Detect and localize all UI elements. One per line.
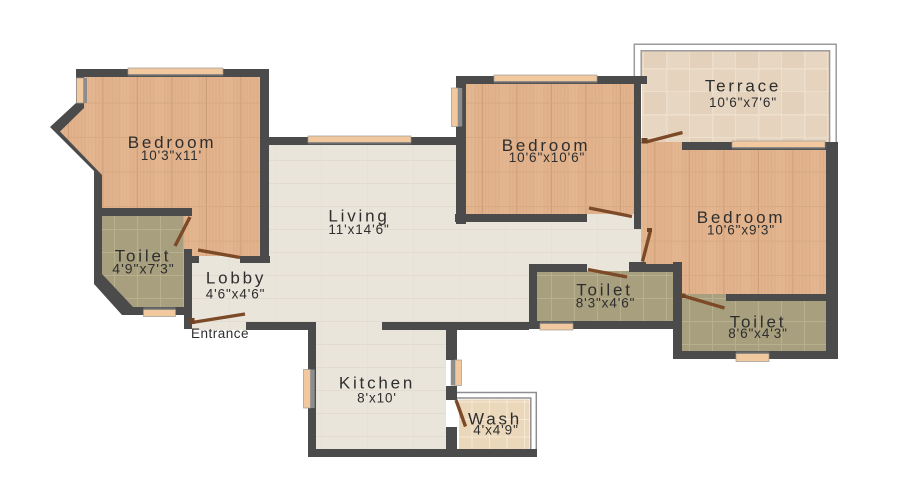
svg-text:11'x14'6": 11'x14'6"	[328, 222, 389, 237]
svg-text:Terrace: Terrace	[705, 77, 781, 96]
svg-text:8'x10': 8'x10'	[357, 391, 397, 406]
svg-text:8'6"x4'3": 8'6"x4'3"	[728, 326, 788, 341]
svg-text:8'3"x4'6": 8'3"x4'6"	[576, 296, 636, 311]
svg-text:10'6"x10'6": 10'6"x10'6"	[509, 150, 585, 165]
svg-text:Entrance: Entrance	[191, 326, 249, 341]
svg-text:4'6"x4'6": 4'6"x4'6"	[206, 287, 266, 302]
svg-text:10'6"x9'3": 10'6"x9'3"	[707, 223, 775, 238]
svg-text:4'x4'9": 4'x4'9"	[473, 423, 519, 438]
svg-text:10'3"x11': 10'3"x11'	[141, 148, 202, 163]
svg-text:4'9"x7'3": 4'9"x7'3"	[112, 261, 174, 277]
svg-text:Lobby: Lobby	[206, 269, 266, 288]
svg-text:10'6"x7'6": 10'6"x7'6"	[709, 95, 777, 110]
